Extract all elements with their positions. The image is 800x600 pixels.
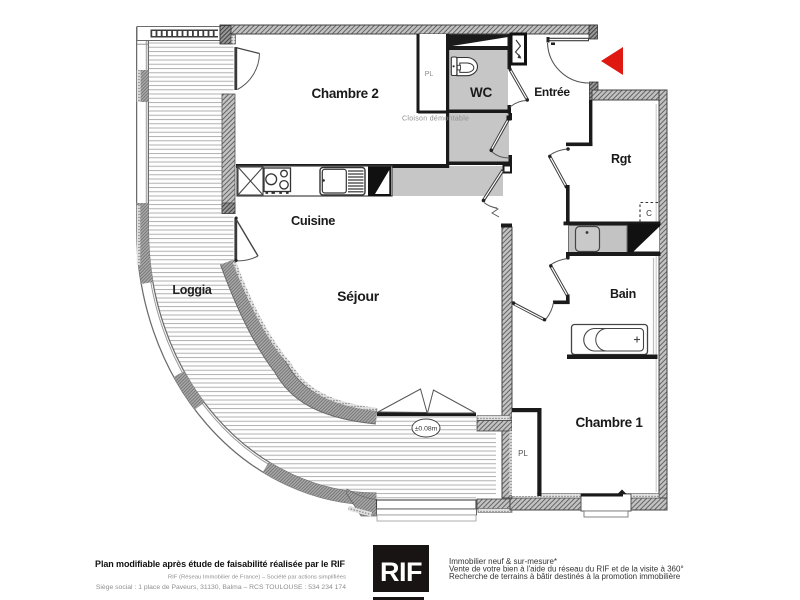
svg-text:Loggia: Loggia	[172, 283, 213, 297]
svg-text:WC: WC	[470, 85, 492, 100]
svg-text:Séjour: Séjour	[337, 288, 380, 304]
svg-text:Bain: Bain	[610, 287, 636, 301]
svg-text:RIF: RIF	[380, 557, 422, 587]
svg-text:Cloison démontable: Cloison démontable	[402, 116, 469, 123]
svg-text:RIF (Réseau Immobilier de Fran: RIF (Réseau Immobilier de France) – Soci…	[168, 575, 346, 581]
svg-text:PL: PL	[425, 71, 434, 78]
svg-text:PL: PL	[518, 449, 528, 458]
svg-text:C: C	[646, 209, 652, 218]
svg-text:Entrée: Entrée	[534, 85, 570, 99]
svg-text:Siège social : 1 place de Pave: Siège social : 1 place de Paveurs, 31130…	[96, 584, 346, 591]
svg-text:Cuisine: Cuisine	[291, 213, 335, 228]
svg-text:Plan modifiable après étude de: Plan modifiable après étude de faisabili…	[95, 559, 345, 569]
svg-text:±0.08m: ±0.08m	[415, 426, 438, 433]
svg-text:Recherche de terrains à bâtir: Recherche de terrains à bâtir destinés à…	[449, 572, 681, 581]
svg-text:Chambre 1: Chambre 1	[575, 415, 643, 430]
svg-text:Rgt: Rgt	[611, 152, 632, 166]
svg-text:Chambre 2: Chambre 2	[311, 86, 378, 101]
